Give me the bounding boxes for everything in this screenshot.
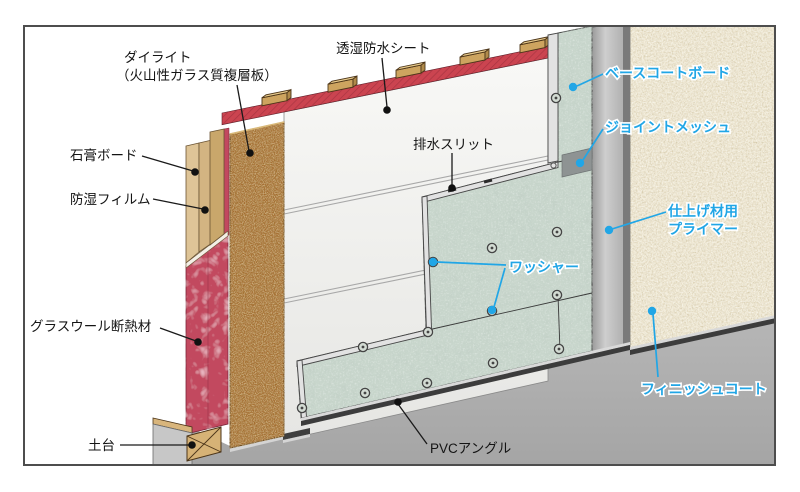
insulation-sliver	[224, 128, 229, 237]
washer	[551, 93, 560, 102]
interior-assembly	[186, 122, 284, 448]
washer	[422, 378, 431, 387]
washer	[552, 290, 561, 299]
washer	[487, 243, 496, 252]
dailite-board-layer	[230, 122, 284, 448]
label-joint-mesh: ジョイントメッシュ	[605, 119, 731, 135]
label-gypsum: 石膏ボード	[70, 147, 138, 163]
label-basecoat: ベースコートボード	[605, 65, 730, 81]
label-finish: フィニッシュコート	[641, 381, 767, 397]
insulation-layer	[186, 234, 228, 434]
label-film: 防湿フィルム	[70, 192, 150, 207]
channel-end-curl	[551, 163, 556, 168]
label-primer: 仕上げ材用	[667, 203, 738, 219]
wall-construction-diagram: ダイライト （火山性ガラス質複層板） 透湿防水シート 石膏ボード 防湿フィルム …	[0, 0, 800, 492]
wall-stud	[210, 129, 224, 245]
label-washer: ワッシャー	[509, 259, 579, 275]
washer	[360, 388, 369, 397]
washer	[552, 227, 561, 236]
washer	[358, 342, 367, 351]
washer	[554, 344, 563, 353]
label-drain-slit: 排水スリット	[413, 137, 494, 152]
washer	[297, 403, 306, 412]
label-sill: 土台	[88, 438, 115, 453]
washer	[423, 327, 432, 336]
label-glasswool: グラスウール断熱材	[30, 319, 151, 334]
label-primer-2: プライマー	[668, 221, 738, 237]
label-dailite: ダイライト	[124, 50, 192, 65]
washer	[488, 358, 497, 367]
label-pvc: PVCアングル	[430, 441, 511, 456]
label-dailite-2: （火山性ガラス質複層板）	[116, 67, 278, 83]
label-sheet: 透湿防水シート	[336, 41, 431, 56]
gypsum-board-layer	[186, 143, 199, 263]
